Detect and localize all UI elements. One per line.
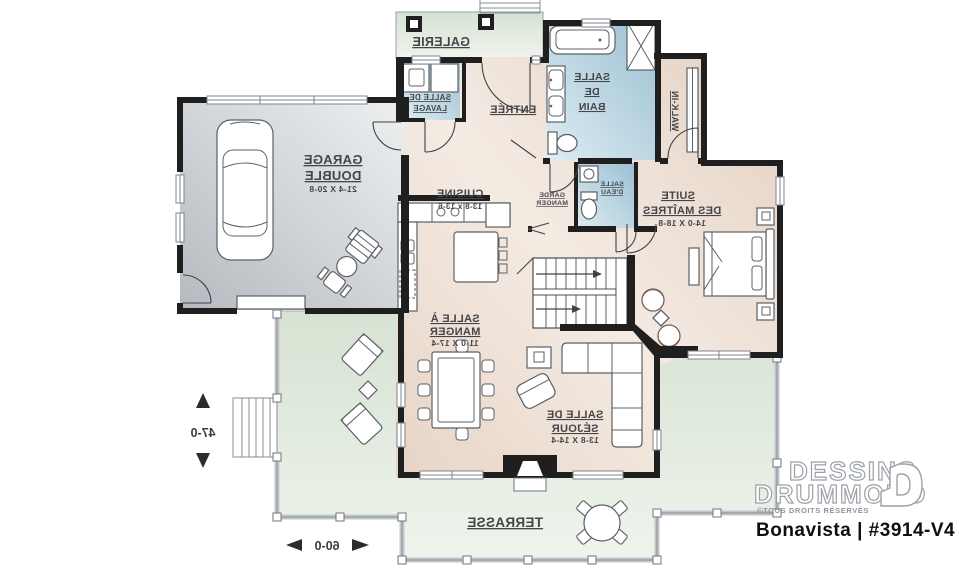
living-side-table [527, 347, 551, 368]
terrasse-label: TERRASSE [467, 515, 543, 530]
floor-plan-page: GALERIE SALLE DE LAVAGE ENTRÉE SALLE DE … [0, 0, 960, 569]
kitchen-island [454, 232, 498, 282]
svg-text:DES MAÎTRES: DES MAÎTRES [643, 204, 721, 217]
bathtub [550, 26, 615, 54]
vanity-sinks [547, 66, 565, 122]
svg-text:13-8 x 13-6: 13-8 x 13-6 [438, 202, 482, 211]
dining-table [432, 352, 480, 428]
dining-label: SALLE À [430, 312, 479, 325]
galerie-label: GALERIE [412, 35, 470, 49]
living-label: SALLE DE [547, 409, 604, 421]
walkin-label: WALK-IN [670, 91, 680, 132]
svg-text:MANGER: MANGER [536, 200, 568, 207]
powder-label: SALLE [600, 181, 624, 188]
garage-floor [180, 100, 405, 310]
svg-text:LAVAGE: LAVAGE [413, 104, 447, 113]
suite-label: SUITE [661, 190, 695, 202]
svg-text:SÉJOUR: SÉJOUR [551, 422, 598, 435]
svg-text:21-4 X 20-8: 21-4 X 20-8 [309, 184, 357, 194]
entree-label: ENTRÉE [490, 103, 536, 116]
laundry-label: SALLE DE [409, 93, 451, 102]
svg-text:14-0 X 18-8: 14-0 X 18-8 [658, 218, 706, 228]
svg-text:11-0 X 17-4: 11-0 X 17-4 [431, 338, 478, 348]
svg-text:DOUBLE: DOUBLE [305, 168, 362, 183]
walkin-shelf [687, 68, 698, 152]
patio-table-set [576, 500, 628, 545]
svg-text:D'EAU: D'EAU [601, 189, 623, 196]
svg-text:60-0: 60-0 [314, 539, 339, 553]
powder-sink [580, 166, 598, 182]
svg-text:MANGER: MANGER [430, 326, 481, 338]
svg-text:BAIN: BAIN [579, 101, 606, 113]
car [217, 120, 273, 260]
pantry-label: GARDE [539, 192, 565, 199]
floor-plan-drawing: GALERIE SALLE DE LAVAGE ENTRÉE SALLE DE … [0, 0, 960, 569]
bath-toilet [548, 132, 577, 154]
svg-text:DE: DE [584, 86, 599, 98]
bed [704, 229, 774, 299]
plan-title: Bonavista | #3914-V4 [756, 520, 955, 541]
svg-text:47-0: 47-0 [190, 426, 215, 440]
suite-dresser [689, 248, 699, 285]
copyright-text: ©TOUS DROITS RÉSERVÉS [757, 506, 869, 515]
linen-closet [627, 22, 655, 70]
garage-label: GARAGE [304, 152, 363, 167]
powder-toilet [581, 192, 597, 219]
bath-label: SALLE [574, 71, 610, 83]
cuisine-label: CUISINE [437, 188, 484, 200]
stairs [517, 258, 627, 328]
washer-dryer [403, 64, 458, 92]
garage-door-panel [237, 296, 305, 309]
terrace-stairs [233, 398, 277, 457]
svg-text:13-8 X 14-4: 13-8 X 14-4 [551, 435, 599, 445]
fridge [486, 203, 510, 227]
